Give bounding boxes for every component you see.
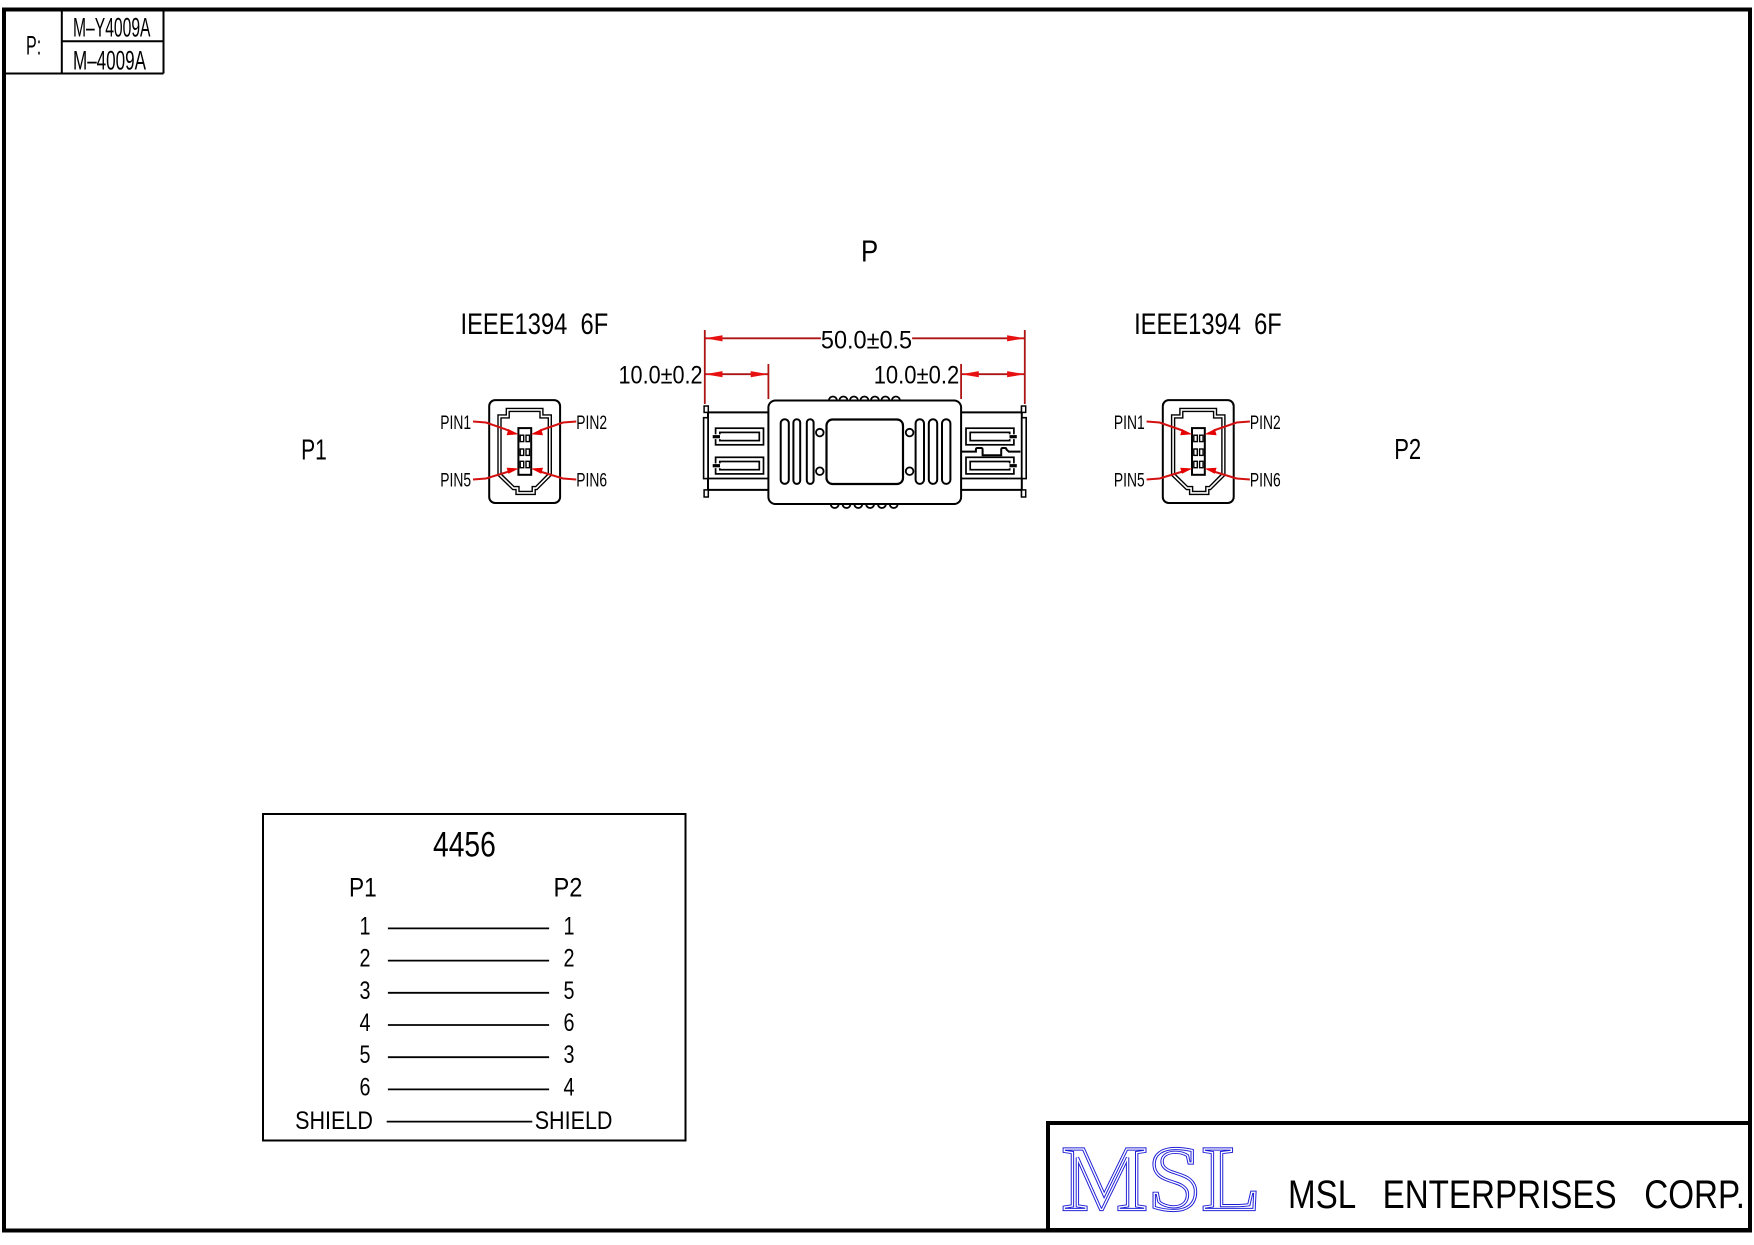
svg-text:SHIELD: SHIELD: [535, 1107, 613, 1135]
svg-text:5: 5: [360, 1041, 371, 1069]
svg-text:50.0±0.5: 50.0±0.5: [821, 327, 912, 355]
svg-text:6: 6: [360, 1073, 371, 1101]
svg-text:2: 2: [564, 945, 575, 973]
svg-text:P:: P:: [26, 31, 41, 61]
svg-text:10.0±0.2: 10.0±0.2: [874, 362, 960, 390]
svg-text:4: 4: [360, 1009, 371, 1037]
svg-text:P2: P2: [554, 873, 583, 903]
svg-text:6: 6: [564, 1009, 575, 1037]
svg-text:SHIELD: SHIELD: [295, 1107, 373, 1135]
svg-text:5: 5: [564, 977, 575, 1005]
svg-text:IEEE1394 6F: IEEE1394 6F: [461, 308, 609, 341]
svg-text:PIN2: PIN2: [576, 413, 607, 434]
svg-text:P1: P1: [349, 873, 377, 903]
svg-text:2: 2: [360, 945, 371, 973]
svg-text:IEEE1394 6F: IEEE1394 6F: [1134, 308, 1282, 341]
svg-text:PIN5: PIN5: [440, 471, 471, 492]
svg-text:1: 1: [564, 912, 575, 940]
svg-text:MSL ENTERPRISES CORP.: MSL ENTERPRISES CORP.: [1288, 1173, 1745, 1217]
svg-text:P2: P2: [1394, 434, 1421, 466]
svg-text:M–Y4009A: M–Y4009A: [73, 13, 151, 43]
svg-text:PIN1: PIN1: [440, 413, 471, 434]
svg-text:M–4009A: M–4009A: [73, 46, 146, 76]
svg-text:3: 3: [360, 977, 371, 1005]
svg-text:PIN6: PIN6: [576, 471, 607, 492]
svg-text:4: 4: [564, 1073, 575, 1101]
svg-text:1: 1: [360, 912, 371, 940]
svg-text:P1: P1: [301, 434, 327, 466]
svg-text:MSL: MSL: [1062, 1127, 1261, 1229]
svg-text:10.0±0.2: 10.0±0.2: [619, 362, 703, 390]
svg-text:4456: 4456: [433, 825, 496, 864]
svg-text:3: 3: [564, 1041, 575, 1069]
svg-text:P: P: [861, 233, 878, 268]
